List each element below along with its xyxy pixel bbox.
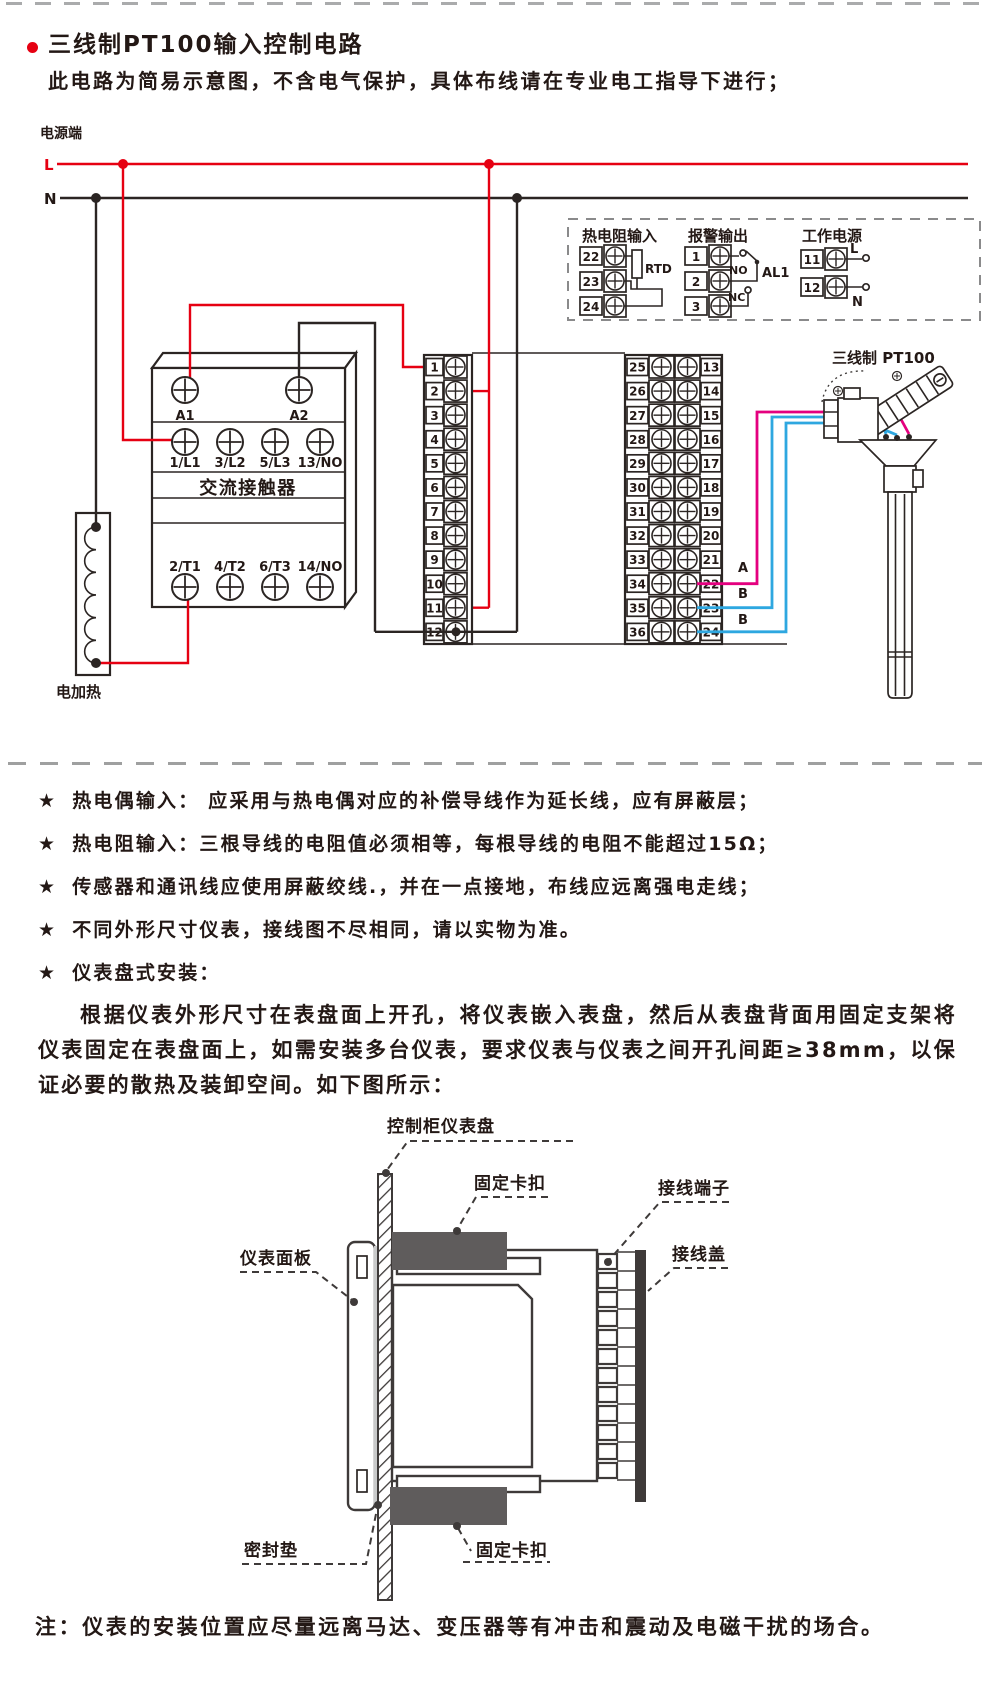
terminal-number: 26 xyxy=(629,385,646,399)
sensor-funnel xyxy=(860,440,936,466)
terminal-number: 25 xyxy=(629,361,646,375)
terminal-number: 1 xyxy=(430,361,438,375)
rear-terminal-cell xyxy=(598,1292,617,1307)
leader-cover xyxy=(648,1268,728,1291)
leader-dot xyxy=(382,1169,390,1177)
cabinet-panel xyxy=(378,1174,392,1600)
page-top-dashed-border xyxy=(6,2,984,5)
notes-list: ★热电偶输入： 应采用与热电偶对应的补偿导线作为延长线，应有屏蔽层；★热电阻输入… xyxy=(38,788,960,1003)
mounting-diagram: 控制柜仪表盘 固定卡扣 接线端子 接线盖 仪表面板 密封垫 固定卡扣 xyxy=(0,1100,990,1612)
sensor-hex-nut xyxy=(824,400,838,438)
installation-note: 注：仪表的安装位置应尽量远离马达、变压器等有冲击和震动及电磁干扰的场合。 xyxy=(35,1612,965,1642)
label-instrument-bezel: 仪表面板 xyxy=(239,1248,312,1269)
screw-terminal-icon xyxy=(172,377,198,403)
circuit-diagram: 电源端 L N 热电阻输入 22 23 24 RTD 报警输出 1 2 3 NO… xyxy=(0,118,990,718)
contactor-terminal-label: 14/NO xyxy=(298,560,343,575)
label-fixing-clip-top: 固定卡扣 xyxy=(474,1173,546,1194)
rear-terminal-cell xyxy=(598,1273,617,1288)
star-bullet-icon: ★ xyxy=(38,788,57,815)
junction-dot xyxy=(91,522,101,532)
star-bullet-icon: ★ xyxy=(38,831,57,858)
rear-terminal-cell xyxy=(598,1406,617,1421)
terminal-number: 5 xyxy=(430,457,438,471)
contactor-terminal-label: 3/L2 xyxy=(214,456,245,471)
terminal-number: 13 xyxy=(703,361,720,375)
electric-heater xyxy=(76,513,110,675)
sensor-head-clamp xyxy=(844,388,860,399)
rear-terminal-cell xyxy=(598,1311,617,1326)
leader-dot xyxy=(604,1258,612,1266)
alarm-no-label: NO xyxy=(729,264,748,277)
rtd-resistor-symbol xyxy=(632,250,642,278)
alarm-switch-pivot xyxy=(755,260,760,265)
fixing-clip-top xyxy=(392,1232,507,1270)
label-sealing-gasket: 密封垫 xyxy=(244,1540,298,1561)
screw-terminal-icon xyxy=(307,574,333,600)
terminal-number: 36 xyxy=(629,625,646,639)
rear-terminal-cell xyxy=(598,1425,617,1440)
supply-n-label: N xyxy=(852,295,863,310)
terminal-number: 31 xyxy=(629,505,646,519)
screw-terminal-icon xyxy=(286,377,312,403)
wire-sensor-b1 xyxy=(697,417,886,608)
page-subtitle: 此电路为简易示意图，不含电气保护，具体布线请在专业电工指导下进行； xyxy=(48,68,791,94)
legend-rtd-title: 热电阻输入 xyxy=(582,227,657,245)
contactor-terminal-label: 2/T1 xyxy=(169,560,201,575)
wiring-cover xyxy=(635,1250,646,1502)
terminal-number: 34 xyxy=(629,577,646,591)
star-bullet-icon: ★ xyxy=(38,917,57,944)
sensor-wire-post xyxy=(883,434,889,440)
screw-terminal-icon xyxy=(217,574,243,600)
fixing-clip-bottom xyxy=(390,1487,507,1525)
alarm-switch-arm xyxy=(746,251,757,261)
page-title: 三线制PT100输入控制电路 xyxy=(48,30,364,60)
sensor-wire-post xyxy=(906,434,912,440)
label-wiring-cover: 接线盖 xyxy=(672,1244,726,1265)
screw-terminal-icon xyxy=(262,574,288,600)
install-paragraph: 根据仪表外形尺寸在表盘面上开孔，将仪表嵌入表盘，然后从表盘背面用固定支架将仪表固… xyxy=(38,998,957,1103)
sensor-wire-b-label: B xyxy=(738,587,748,602)
terminal-number: 17 xyxy=(703,457,720,471)
sensor-screw-icon xyxy=(834,387,843,396)
legend-supply-terminal: 12 xyxy=(804,281,821,295)
note-text: 热电阻输入：三根导线的电阻值必须相等，每根导线的电阻不能超过15Ω； xyxy=(72,831,778,858)
legend-alarm-terminal: 2 xyxy=(692,275,700,289)
sensor-probe xyxy=(888,492,912,698)
label-cabinet-panel: 控制柜仪表盘 xyxy=(387,1116,495,1137)
terminal-number: 2 xyxy=(430,385,438,399)
terminal-number: 33 xyxy=(629,553,646,567)
legend-rtd-terminal: 23 xyxy=(583,275,600,289)
contactor-terminal-label: 1/L1 xyxy=(169,456,200,471)
bezel-slot xyxy=(357,1470,367,1492)
terminal-number: 4 xyxy=(430,433,438,447)
contactor-name: 交流接触器 xyxy=(199,477,297,499)
terminal-strip-1-12: 123456789101112 xyxy=(424,355,472,644)
alarm-nc-label: NC xyxy=(728,291,745,304)
rear-terminal-cell xyxy=(598,1368,617,1383)
power-terminal-label: 电源端 xyxy=(40,125,82,142)
leader-bezel xyxy=(240,1272,352,1300)
sensor-label: 三线制 PT100 xyxy=(832,349,935,367)
legend-alarm-title: 报警输出 xyxy=(688,227,748,245)
legend-rtd-terminal: 22 xyxy=(583,250,600,264)
rear-terminal-cell xyxy=(598,1444,617,1459)
terminal-number: 16 xyxy=(703,433,720,447)
bezel-slot xyxy=(357,1256,367,1278)
section-divider-dashed xyxy=(8,762,982,765)
terminal-number: 14 xyxy=(703,385,720,399)
terminal-number: 8 xyxy=(430,529,438,543)
terminal-number: 20 xyxy=(703,529,720,543)
screw-terminal-icon xyxy=(307,429,333,455)
leader-clip-top xyxy=(458,1197,548,1228)
terminal-number: 35 xyxy=(629,601,646,615)
contactor-coil-label: A2 xyxy=(289,409,308,424)
supply-n-contact xyxy=(863,284,869,290)
supply-l-contact xyxy=(863,255,869,261)
terminal-number: 21 xyxy=(703,553,720,567)
note-text: 传感器和通讯线应使用屏蔽绞线.，并在一点接地，布线应远离强电走线； xyxy=(72,874,760,901)
line-n-label: N xyxy=(44,190,57,208)
terminal-number: 9 xyxy=(430,553,438,567)
screw-terminal-icon xyxy=(262,429,288,455)
label-fixing-clip-bottom: 固定卡扣 xyxy=(476,1540,548,1561)
note-item: ★不同外形尺寸仪表，接线图不尽相同，请以实物为准。 xyxy=(38,917,960,944)
rear-terminal-cell xyxy=(598,1330,617,1345)
note-item: ★热电阻输入：三根导线的电阻值必须相等，每根导线的电阻不能超过15Ω； xyxy=(38,831,960,858)
star-bullet-icon: ★ xyxy=(38,960,57,987)
legend-rtd-wires xyxy=(624,250,662,306)
terminal-number: 18 xyxy=(703,481,720,495)
sensor-wire-post xyxy=(894,435,900,441)
terminal-number: 6 xyxy=(430,481,438,495)
note-item: ★热电偶输入： 应采用与热电偶对应的补偿导线作为延长线，应有屏蔽层； xyxy=(38,788,960,815)
sensor-wire-b-label: B xyxy=(738,613,748,628)
terminal-number: 27 xyxy=(629,409,646,423)
leader-dot xyxy=(453,1522,461,1530)
contactor-terminal-label: 5/L3 xyxy=(259,456,290,471)
junction-dot xyxy=(512,193,522,203)
terminal-number: 28 xyxy=(629,433,646,447)
note-item: ★仪表盘式安装： xyxy=(38,960,960,987)
leader-dot xyxy=(350,1298,358,1306)
legend-alarm-terminal: 3 xyxy=(692,300,700,314)
terminal-number: 19 xyxy=(703,505,720,519)
rear-terminal-cell xyxy=(598,1463,617,1478)
terminal-number: 7 xyxy=(430,505,438,519)
leader-dot xyxy=(453,1227,461,1235)
terminal-number: 32 xyxy=(629,529,646,543)
terminal-number: 15 xyxy=(703,409,720,423)
rear-terminal-cell xyxy=(598,1349,617,1364)
contactor-coil-label: A1 xyxy=(175,409,194,424)
terminal-block-cells xyxy=(598,1252,635,1480)
legend-supply-terminal: 11 xyxy=(804,253,821,267)
sensor-wire-a-label: A xyxy=(738,561,748,576)
legend-rtd-component-label: RTD xyxy=(645,262,672,276)
star-bullet-icon: ★ xyxy=(38,874,57,901)
junction-dot xyxy=(91,193,101,203)
terminal-number: 3 xyxy=(430,409,438,423)
leader-panel xyxy=(387,1141,573,1170)
terminal-number: 29 xyxy=(629,457,646,471)
junction-dot xyxy=(452,627,461,636)
terminal-strip-25-36-13-24: 2513261427152816291730183119322033213422… xyxy=(625,355,722,644)
contactor-terminal-label: 13/NO xyxy=(298,456,343,471)
screw-terminal-icon xyxy=(172,574,198,600)
rear-terminal-cell xyxy=(598,1387,617,1402)
supply-l-label: L xyxy=(850,242,858,257)
line-l-label: L xyxy=(44,156,54,174)
alarm-nc-contact xyxy=(745,287,751,293)
note-text: 仪表盘式安装： xyxy=(72,960,220,987)
legend-alarm-terminal: 1 xyxy=(692,250,700,264)
heater-label: 电加热 xyxy=(56,683,101,701)
terminal-number: 10 xyxy=(426,577,443,591)
sensor-head-body xyxy=(838,398,878,442)
legend-rtd-terminal: 24 xyxy=(583,300,600,314)
screw-terminal-icon xyxy=(217,429,243,455)
contactor-terminal-label: 6/T3 xyxy=(259,560,291,575)
junction-dot xyxy=(91,658,101,668)
wire-sensor-b2 xyxy=(697,423,897,632)
pt100-sensor: 三线制 PT100 xyxy=(822,349,954,698)
alarm-no-contact xyxy=(740,250,746,256)
sensor-collar-clip xyxy=(913,470,923,487)
terminal-number: 11 xyxy=(426,601,443,615)
note-text: 不同外形尺寸仪表，接线图不尽相同，请以实物为准。 xyxy=(72,917,581,944)
note-item: ★传感器和通讯线应使用屏蔽绞线.，并在一点接地，布线应远离强电走线； xyxy=(38,874,960,901)
sensor-collar xyxy=(884,466,916,492)
leader-dot xyxy=(374,1501,382,1509)
title-bullet-icon xyxy=(27,42,38,53)
label-wiring-terminal: 接线端子 xyxy=(658,1178,730,1199)
screw-terminal-icon xyxy=(172,429,198,455)
alarm-relay-name: AL1 xyxy=(762,266,789,281)
contactor-terminal-label: 4/T2 xyxy=(214,560,246,575)
junction-dot xyxy=(118,159,128,169)
instrument-inner-module xyxy=(393,1285,532,1467)
terminal-number: 30 xyxy=(629,481,646,495)
note-text: 热电偶输入： 应采用与热电偶对应的补偿导线作为延长线，应有屏蔽层； xyxy=(72,788,759,815)
junction-dot xyxy=(484,159,494,169)
sensor-screw-icon xyxy=(893,372,902,381)
